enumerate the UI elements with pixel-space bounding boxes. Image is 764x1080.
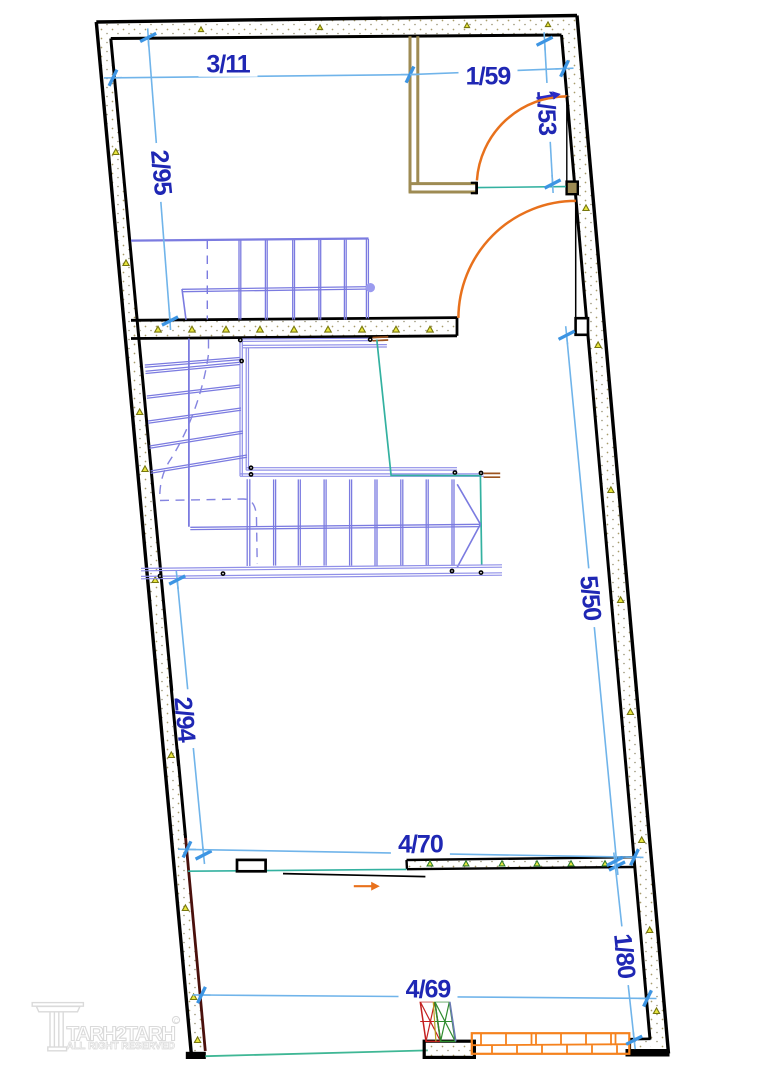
svg-text:4/69: 4/69 <box>406 976 451 1004</box>
svg-text:2/95: 2/95 <box>145 149 177 197</box>
svg-text:C: C <box>174 1018 179 1025</box>
svg-text:1/59: 1/59 <box>466 62 511 90</box>
svg-text:3/11: 3/11 <box>206 50 250 78</box>
svg-text:1/80: 1/80 <box>608 932 641 979</box>
svg-text:ALL RIGHT RESERVED: ALL RIGHT RESERVED <box>67 1041 176 1052</box>
svg-text:4/70: 4/70 <box>398 831 443 859</box>
svg-text:5/50: 5/50 <box>574 574 606 621</box>
